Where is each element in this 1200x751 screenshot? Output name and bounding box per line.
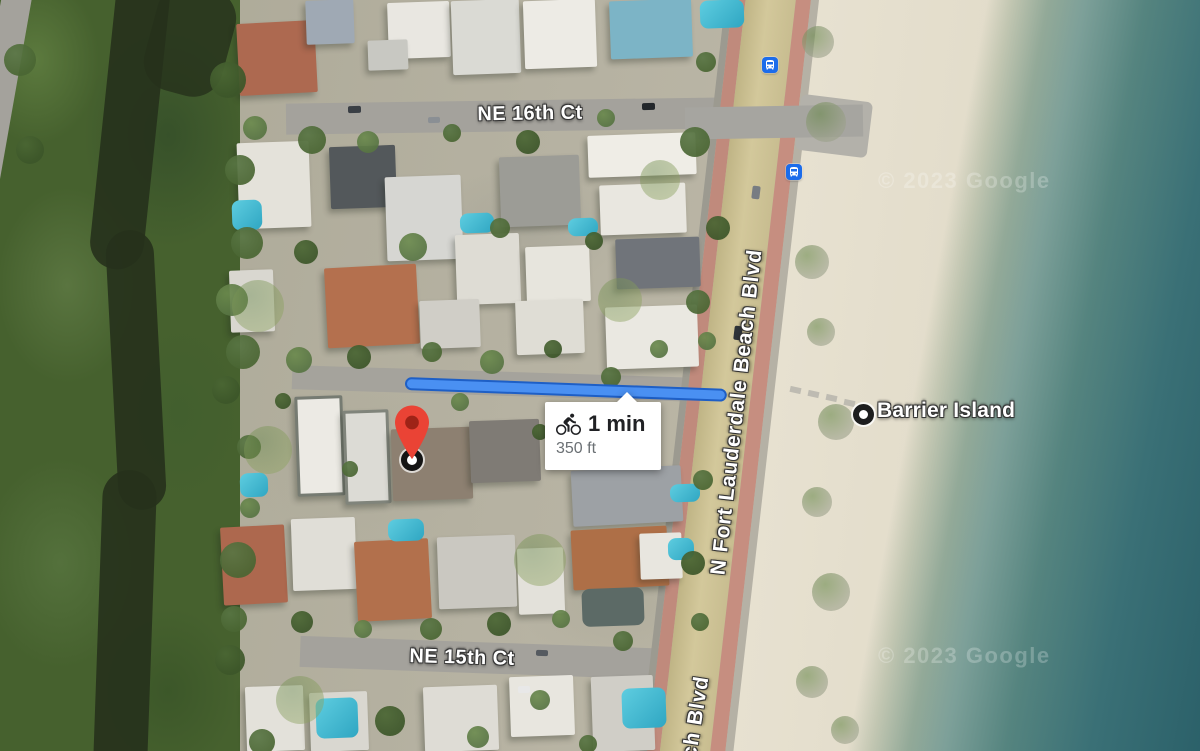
lawn-patch xyxy=(514,534,566,586)
lawn-patch xyxy=(640,160,680,200)
tree xyxy=(221,606,247,632)
tree xyxy=(243,116,267,140)
house-roof xyxy=(305,0,355,45)
car xyxy=(642,103,655,110)
tree xyxy=(16,136,44,164)
house-roof xyxy=(455,233,521,305)
tree xyxy=(579,735,597,751)
tree xyxy=(516,130,540,154)
tree xyxy=(443,124,461,142)
house-roof xyxy=(469,419,541,483)
tree xyxy=(226,335,260,369)
tree xyxy=(342,461,358,477)
tree xyxy=(585,232,603,250)
red-location-pin-icon xyxy=(392,404,432,461)
tree xyxy=(220,542,256,578)
tree xyxy=(354,620,372,638)
tree xyxy=(294,240,318,264)
tree xyxy=(530,690,550,710)
google-copyright-watermark: © 2023 Google xyxy=(878,168,1051,194)
tree xyxy=(451,393,469,411)
tree xyxy=(210,62,246,98)
street-label-ne-15th-ct: NE 15th Ct xyxy=(409,645,515,671)
lawn-patch xyxy=(276,676,324,724)
tooltip-box: 1 min 350 ft xyxy=(545,402,661,470)
tree xyxy=(422,342,442,362)
lawn-patch xyxy=(598,278,642,322)
tree xyxy=(597,109,615,127)
street-label-ne-16th-ct: NE 16th Ct xyxy=(477,102,583,127)
bicycle-icon xyxy=(556,412,581,437)
route-distance: 350 ft xyxy=(556,440,661,458)
bus-icon xyxy=(788,166,800,178)
tree xyxy=(487,612,511,636)
house-roof xyxy=(294,395,345,497)
swimming-pool xyxy=(388,518,425,541)
car xyxy=(428,117,440,123)
house-roof xyxy=(523,0,597,69)
house-roof xyxy=(499,155,581,228)
house-roof xyxy=(291,517,357,591)
tree xyxy=(291,611,313,633)
route-duration: 1 min xyxy=(588,411,645,437)
car xyxy=(536,650,548,656)
house-roof xyxy=(354,538,432,622)
tree xyxy=(680,127,710,157)
bus-stop-icon[interactable] xyxy=(786,164,802,180)
bus-icon xyxy=(764,59,776,71)
tree xyxy=(544,340,562,358)
tree xyxy=(286,347,312,373)
tree xyxy=(347,345,371,369)
tree xyxy=(399,233,427,261)
swimming-pool xyxy=(231,199,262,230)
tree xyxy=(231,227,263,259)
tree xyxy=(215,645,245,675)
poi-label-barrier-island[interactable]: Barrier Island xyxy=(877,399,1015,423)
tree xyxy=(212,376,240,404)
lawn-patch xyxy=(232,280,284,332)
car xyxy=(518,686,530,693)
tree xyxy=(696,52,716,72)
waterway xyxy=(93,469,158,751)
house-roof xyxy=(437,535,517,610)
house-roof xyxy=(324,264,420,349)
tree xyxy=(249,729,275,751)
house-roof xyxy=(609,0,693,59)
tree xyxy=(357,131,379,153)
tree xyxy=(552,610,570,628)
satellite-map[interactable]: © 2023 Google © 2023 Google NE 16th Ct N… xyxy=(0,0,1200,751)
lawn-patch xyxy=(244,426,292,474)
poi-dot-barrier-island[interactable] xyxy=(853,404,874,425)
house-roof xyxy=(451,0,522,75)
tree xyxy=(225,155,255,185)
tree xyxy=(375,706,405,736)
tree xyxy=(467,726,489,748)
destination-pin[interactable] xyxy=(392,404,432,466)
tree xyxy=(420,618,442,640)
car xyxy=(348,106,361,113)
tree xyxy=(240,498,260,518)
house-roof xyxy=(342,409,391,505)
google-copyright-watermark: © 2023 Google xyxy=(878,643,1051,669)
swimming-pool xyxy=(460,212,495,233)
route-info-tooltip[interactable]: 1 min 350 ft xyxy=(545,402,661,470)
tree xyxy=(480,350,504,374)
bus-stop-icon[interactable] xyxy=(762,57,778,73)
house-roof xyxy=(367,39,408,70)
swimming-pool xyxy=(240,473,269,498)
house-roof xyxy=(525,245,591,303)
tree xyxy=(650,340,668,358)
tree xyxy=(298,126,326,154)
tree xyxy=(4,44,36,76)
tree xyxy=(275,393,291,409)
tree xyxy=(490,218,510,238)
